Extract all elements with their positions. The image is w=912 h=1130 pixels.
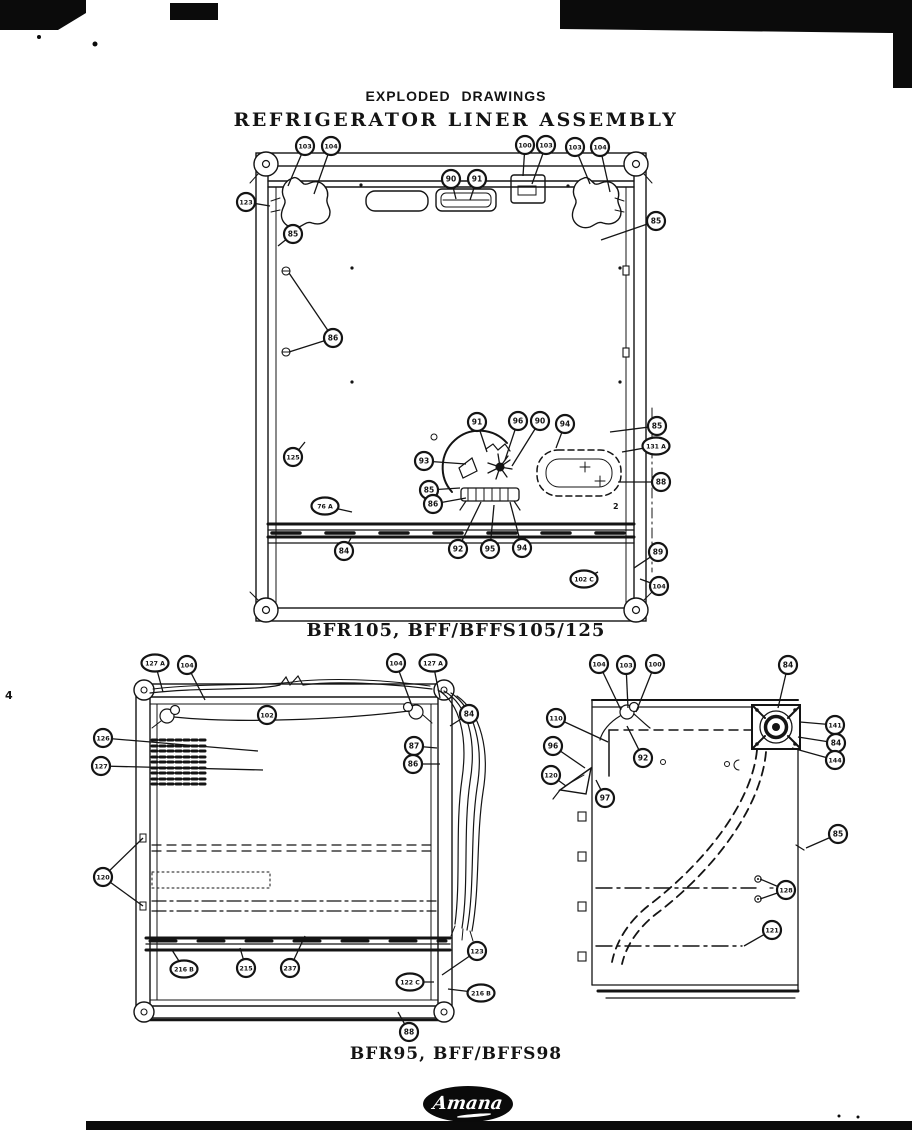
callout-93: 93 [415,452,466,470]
callout-91: 91 [468,170,486,200]
scan-blot-top-right [560,0,912,88]
fan-motor-box [752,705,800,749]
svg-text:85: 85 [651,216,661,225]
callout-144: 144 [792,748,844,769]
amana-logo: Amana [423,1086,513,1122]
svg-text:131 A: 131 A [646,443,666,450]
svg-text:96: 96 [548,741,558,750]
svg-text:85: 85 [833,829,843,838]
callout-86: 86 [289,273,342,352]
callout-104: 104 [178,656,205,700]
svg-text:121: 121 [765,926,778,934]
svg-text:127 A: 127 A [423,660,443,667]
callout-85: 85 [610,417,666,435]
hinge-gasket-right [572,178,624,228]
svg-text:104: 104 [180,661,194,669]
svg-text:144: 144 [828,756,842,764]
callout-216B: 216 B [171,950,198,978]
page-header: EXPLODED DRAWINGS [0,88,912,104]
svg-text:237: 237 [283,964,296,972]
callout-100: 100 [516,136,534,176]
svg-text:84: 84 [783,660,793,669]
svg-text:86: 86 [408,759,418,768]
callout-122C: 122 C [397,974,435,991]
svg-text:91: 91 [472,417,482,426]
hinge-gasket-left [271,178,330,228]
svg-text:103: 103 [568,143,581,151]
callout-216B: 216 B [448,985,495,1002]
callout-102: 102 [258,706,276,724]
svg-text:87: 87 [409,741,419,750]
svg-text:141: 141 [828,721,841,729]
callout-215: 215 [237,948,255,977]
harness-wire [174,711,409,720]
svg-text:126: 126 [96,734,110,742]
callout-125: 125 [284,442,305,466]
exploded-drawing-art: 4 [0,0,912,1130]
svg-text:104: 104 [593,143,607,151]
svg-text:100: 100 [518,141,532,149]
svg-text:89: 89 [653,547,663,556]
callout-123: 123 [237,193,270,211]
callout-86: 86 [404,755,440,773]
svg-text:103: 103 [298,142,311,150]
svg-text:123: 123 [239,198,252,206]
svg-text:102: 102 [260,711,273,719]
svg-text:104: 104 [389,659,403,667]
callout-96: 96 [544,737,585,768]
svg-text:92: 92 [638,753,648,762]
callout-90: 90 [442,170,460,199]
svg-text:93: 93 [419,456,429,465]
inline-mark: 2 [613,502,619,511]
callout-94: 94 [556,415,574,448]
svg-text:86: 86 [328,333,338,342]
svg-text:102 C: 102 C [574,576,594,583]
callout-120: 120 [542,766,566,786]
svg-text:125: 125 [286,453,299,461]
callout-102C: 102 C [571,571,599,588]
svg-text:90: 90 [446,174,456,183]
shelf-dashdot-lines [152,901,436,911]
svg-text:76 A: 76 A [317,503,333,510]
svg-text:104: 104 [592,660,606,668]
callout-131A: 131 A [622,438,670,455]
fan-shroud-housing [537,450,621,496]
figure2-caption: BFR95, BFF/BFFS98 [0,1044,912,1064]
shelf-dashed-lines [152,845,436,851]
svg-text:84: 84 [831,738,841,747]
liner-drawing-bottom-right [553,700,804,998]
svg-text:216 B: 216 B [471,990,491,997]
frame-screws [140,834,146,910]
svg-text:86: 86 [428,499,438,508]
callout-128: 128 [760,879,795,899]
svg-text:84: 84 [464,709,474,718]
svg-text:120: 120 [544,771,558,779]
svg-text:91: 91 [472,174,482,183]
callout-88: 88 [398,1012,418,1041]
scan-bar-bottom [86,1121,912,1130]
callout-123: 123 [442,942,486,975]
svg-text:84: 84 [339,546,349,555]
callout-96: 96 [505,412,527,460]
svg-text:95: 95 [485,544,495,553]
svg-text:127: 127 [94,762,107,770]
callout-121: 121 [744,921,781,946]
svg-text:92: 92 [453,544,463,553]
svg-text:103: 103 [539,141,552,149]
callout-85: 85 [420,481,460,499]
svg-text:88: 88 [656,477,666,486]
bottom-rails [268,524,634,543]
drain-hose [612,750,766,964]
scan-artifacts [0,0,912,1130]
svg-text:104: 104 [652,582,666,590]
callout-84: 84 [335,536,353,560]
svg-text:104: 104 [324,142,338,150]
svg-text:215: 215 [239,964,252,972]
svg-text:110: 110 [549,714,563,722]
bottom-rails [146,938,450,950]
callout-104: 104 [387,654,412,706]
scan-blot-top-left [0,0,86,30]
evaporator-fan-assembly [443,431,520,510]
svg-text:216 B: 216 B [174,966,194,973]
amana-logo-text: Amana [432,1095,504,1113]
callout-76A: 76 A [312,498,353,515]
part-callouts: 1031041001031031049091123858586125919690… [92,136,847,1041]
svg-text:122 C: 122 C [400,979,420,986]
callout-237: 237 [281,936,305,977]
harness-grommet [620,703,639,720]
svg-text:123: 123 [470,947,483,955]
svg-text:94: 94 [517,543,527,552]
margin-page-mark: 4 [5,689,13,702]
wiring-loom [438,690,485,941]
svg-text:96: 96 [513,416,523,425]
callout-97: 97 [596,780,614,807]
svg-text:128: 128 [779,886,793,894]
svg-text:90: 90 [535,416,545,425]
callout-85: 85 [278,225,302,246]
figure1-caption: BFR105, BFF/BFFS105/125 [0,620,912,641]
callout-85: 85 [806,825,847,848]
callout-141: 141 [800,716,844,734]
svg-text:120: 120 [96,873,110,881]
callout-92: 92 [627,726,652,767]
callout-100: 100 [636,655,664,712]
svg-text:100: 100 [648,660,662,668]
svg-text:85: 85 [288,229,298,238]
callout-104: 104 [640,577,668,595]
svg-text:94: 94 [560,419,570,428]
svg-text:88: 88 [404,1027,414,1036]
scan-blot-top [170,3,218,20]
manual-page: 4 [0,0,912,1130]
svg-text:85: 85 [652,421,662,430]
callout-103: 103 [532,136,555,184]
dotted-panel-region [152,872,270,888]
svg-text:85: 85 [424,485,434,494]
callout-87: 87 [405,737,437,755]
svg-text:127 A: 127 A [145,660,165,667]
callout-89: 89 [634,543,667,568]
svg-text:103: 103 [619,661,632,669]
page-title: REFRIGERATOR LINER ASSEMBLY [0,109,912,131]
edge-tabs [578,812,586,961]
callout-84: 84 [798,734,845,752]
svg-text:97: 97 [600,793,610,802]
